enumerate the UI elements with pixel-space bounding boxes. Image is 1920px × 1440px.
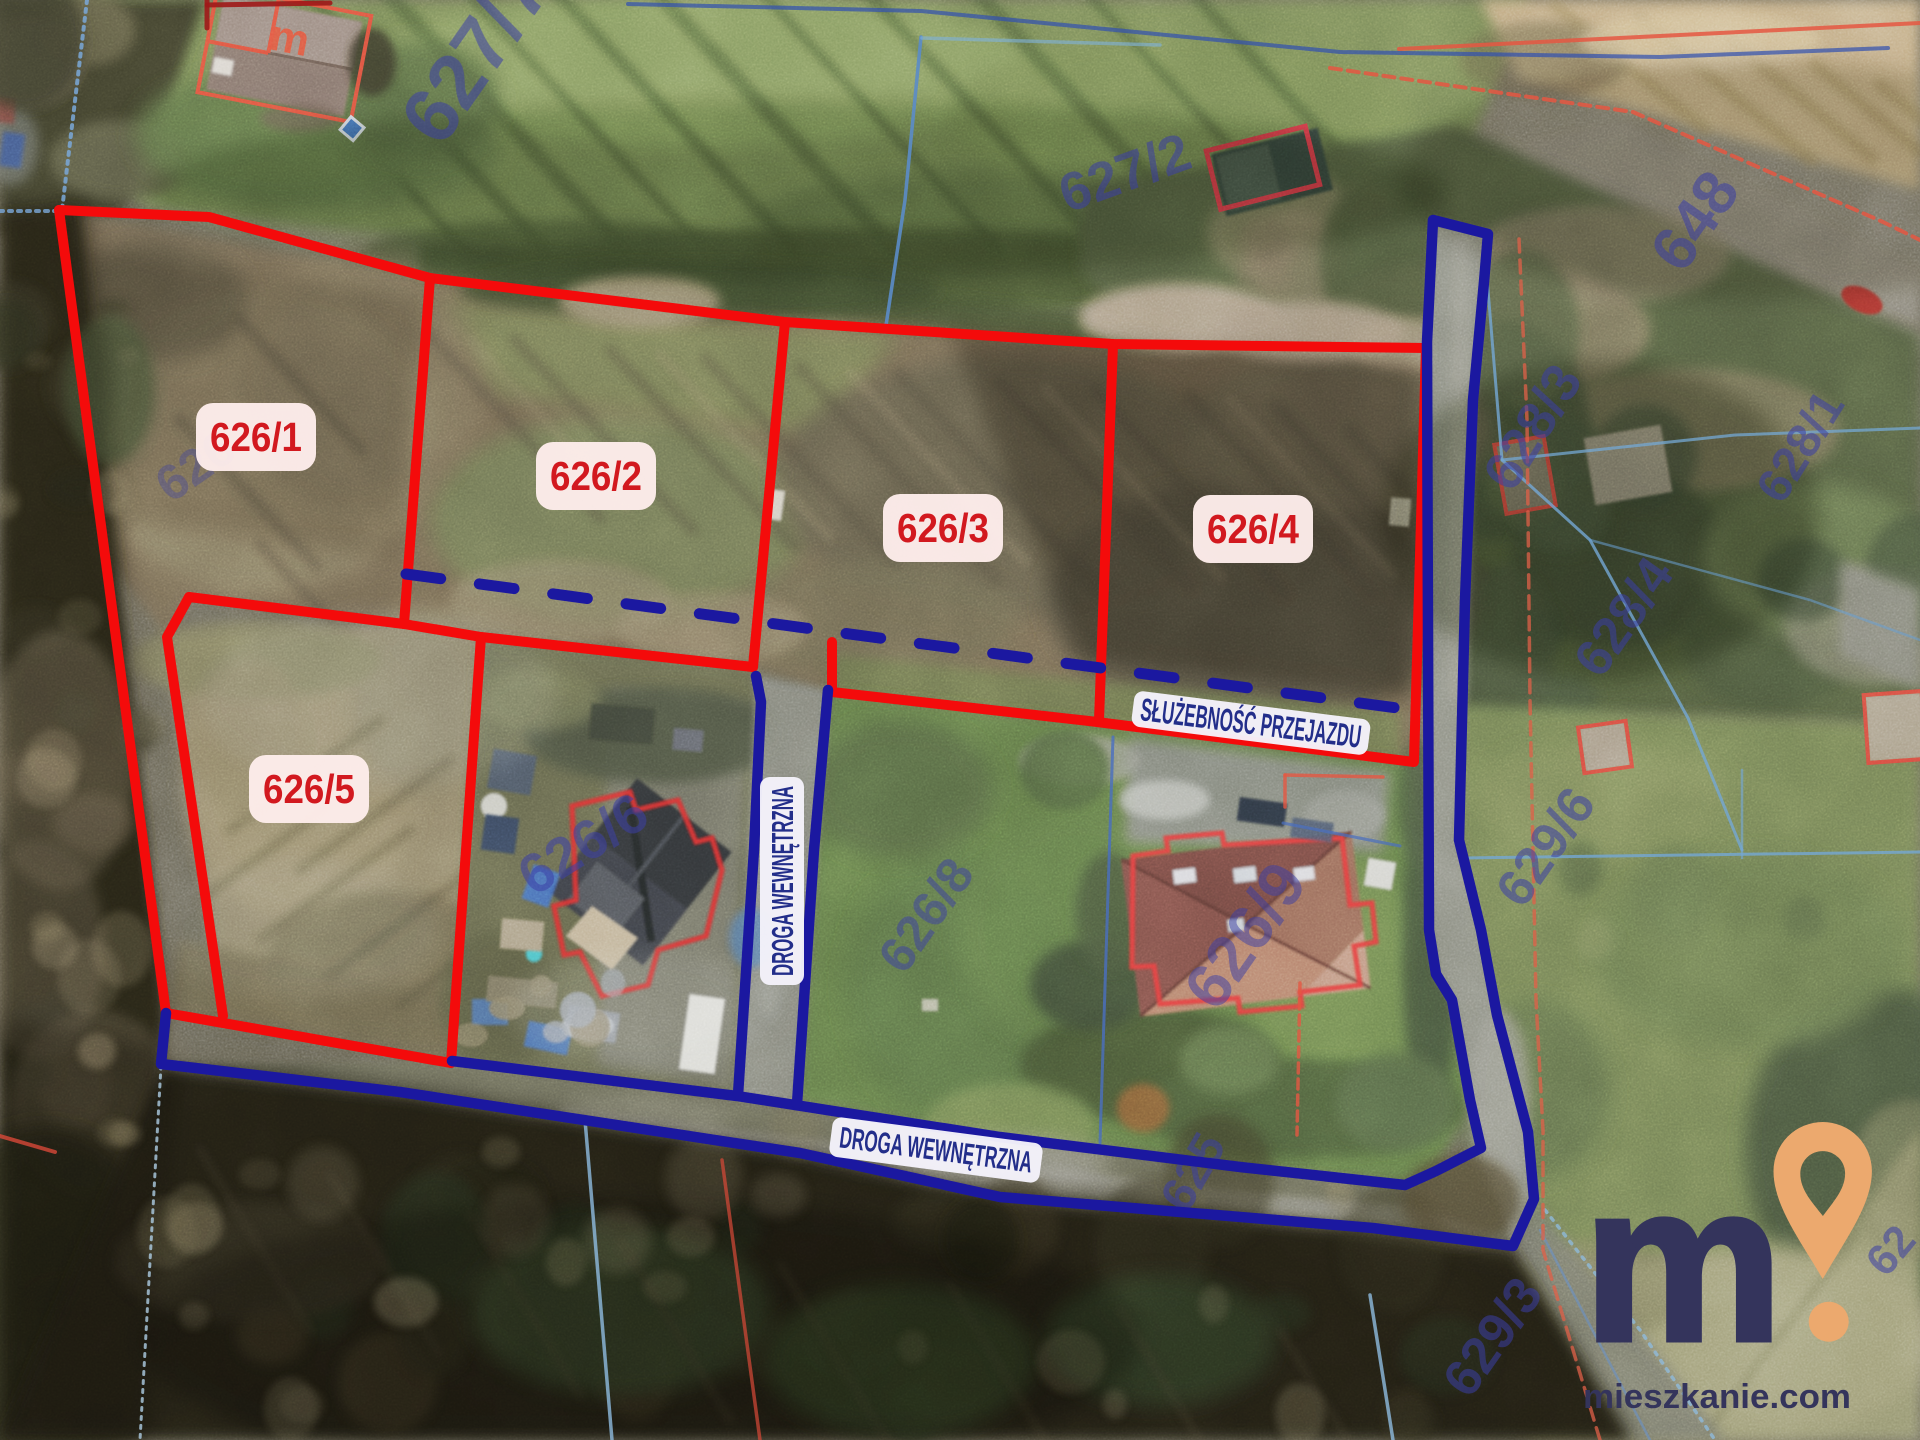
svg-text:DROGA WEWNĘTRZNA: DROGA WEWNĘTRZNA <box>765 786 800 976</box>
svg-text:m: m <box>1583 1136 1783 1388</box>
svg-text:mieszkanie.com: mieszkanie.com <box>1583 1378 1851 1416</box>
svg-text:626/1: 626/1 <box>210 414 302 460</box>
svg-text:626/2: 626/2 <box>550 453 642 499</box>
svg-text:626/5: 626/5 <box>263 766 355 812</box>
svg-text:626/3: 626/3 <box>897 505 989 551</box>
svg-text:626/4: 626/4 <box>1207 506 1299 552</box>
